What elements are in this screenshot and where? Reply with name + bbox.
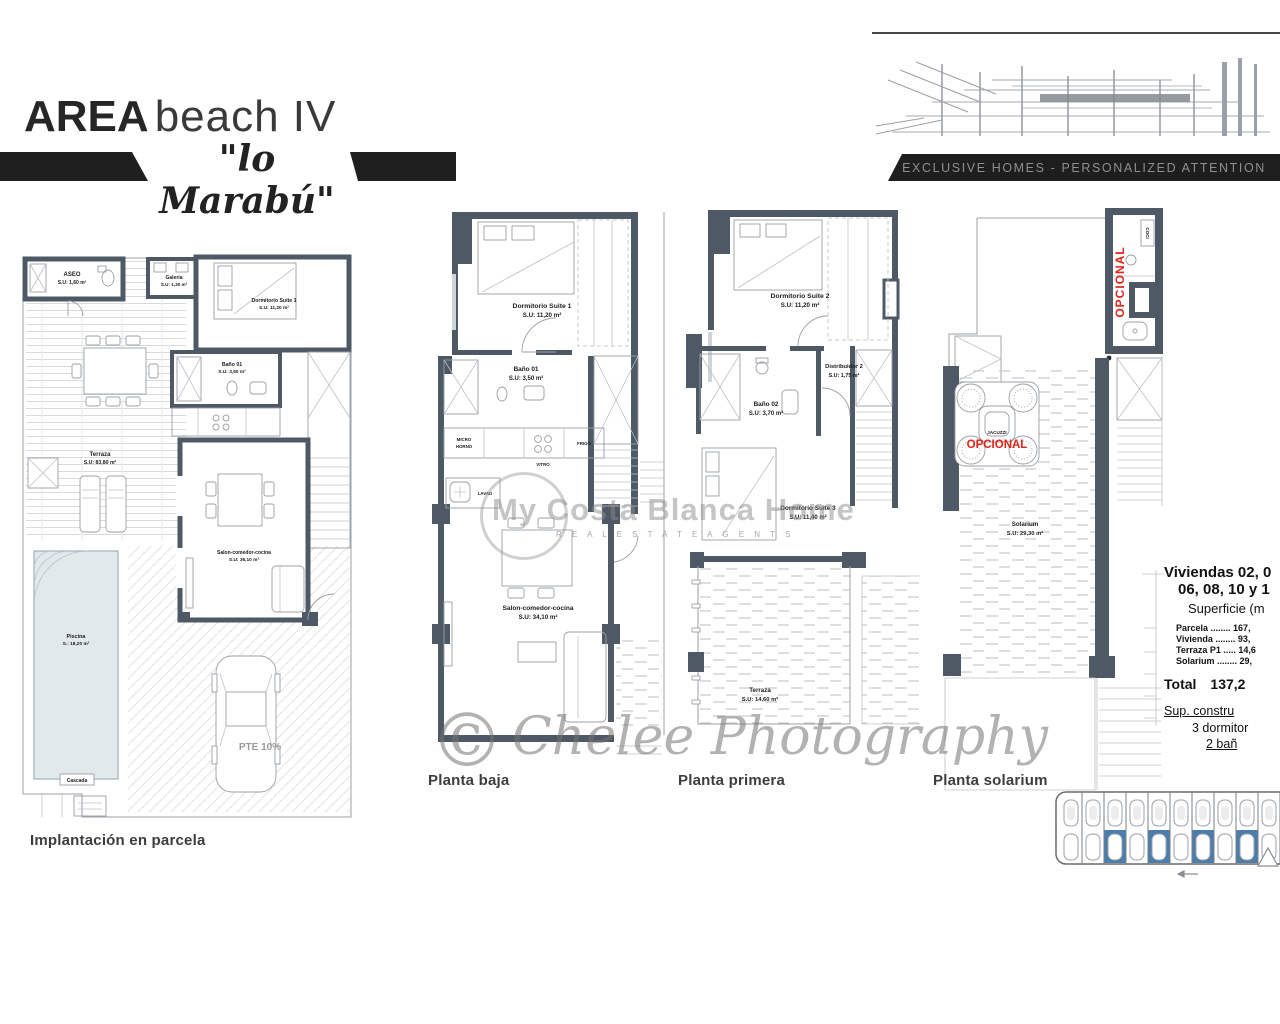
room-label: Baño 02: [754, 401, 779, 408]
surface-row-vivienda: Vivienda ........ 93,: [1176, 634, 1280, 645]
room-label: Baño 01: [222, 362, 242, 368]
optional-vertical-label: OPCIONAL: [1113, 246, 1127, 317]
stairs: [594, 356, 664, 506]
appliance-label-micro: MICRO: [457, 437, 472, 442]
door-arc: [822, 388, 850, 416]
flyer-page: AREAbeach IV "lo Marabú" EXCLUSIVE HOMES…: [0, 0, 1280, 1024]
info-title-line1: Viviendas 02, 0: [1164, 564, 1280, 581]
kitchen-label: COCI: [1145, 227, 1150, 238]
laundry: LAVAD: [446, 478, 500, 508]
stairs: [856, 350, 892, 500]
room-area: S.U: 1,60 m²: [58, 280, 87, 286]
scale-mark: [1178, 871, 1198, 877]
room-label: Dormitorio Suite 1: [252, 298, 297, 304]
kitchenette: COCI OPCIONAL: [1105, 208, 1163, 354]
terrace: Terraza S.U: 14,60 m²: [688, 566, 850, 724]
caption-planta-primera: Planta primera: [678, 772, 785, 789]
walls: [432, 212, 638, 742]
surface-row-terraza: Terraza P1 ..... 14,6: [1176, 645, 1280, 656]
neighbor-outline: [862, 576, 920, 724]
room-area: S.U: 36,10 m²: [229, 557, 260, 563]
house-kitchen: [172, 408, 280, 436]
room-area: S.U: 11,40 m²: [789, 514, 826, 521]
room-area: S.U: 29,30 m²: [1007, 530, 1043, 537]
jacuzzi-optional-label: OPCIONAL: [967, 439, 1028, 451]
house-stairs: [308, 352, 350, 548]
room-label: Dormitorio Suite 1: [513, 303, 572, 310]
room-area: S.U: 34,10 m²: [519, 614, 558, 621]
first-floor-plan: Dormitorio Suite 2 S.U: 11,20 m² Baño 02…: [686, 208, 921, 768]
surface-row-solarium: Solarium ........ 29,: [1176, 656, 1280, 667]
room-label: Solarium: [1012, 521, 1039, 528]
kitchen: MICRO HORNO VITRO FRIGO: [444, 428, 604, 467]
brand-beach-text: beach IV: [155, 92, 337, 141]
brand-bar-left: [0, 152, 148, 181]
window-niche: [884, 280, 898, 318]
pool: Piscina S.: 18,20 m² Cascada: [34, 551, 118, 816]
info-title-line2: 06, 08, 10 y 1: [1178, 581, 1280, 598]
house-bath01: Baño 01 S.U: 3,50 m²: [172, 352, 280, 406]
room-label: Terraza: [90, 452, 112, 458]
hall-area: S.U: 1,75 m²: [829, 373, 860, 379]
header-rule-line: [872, 32, 1280, 34]
bathroom02: Baño 02 S.U: 3,70 m²: [700, 354, 798, 420]
brand-area-text: AREA: [24, 92, 149, 141]
room-area: S.U: 11,20 m²: [781, 302, 820, 309]
built-surface-label: Sup. constru: [1164, 704, 1280, 718]
room-label: Salon-comedor-cocina: [502, 605, 573, 612]
bedroom-suite3: Dormitorio Suite 3 S.U: 11,40 m²: [702, 448, 836, 540]
appliance-label-horno: HORNO: [456, 444, 473, 449]
brand-bar-right: [350, 152, 456, 181]
room-label: Terraza: [749, 687, 771, 694]
dimension-marks: [1142, 566, 1164, 776]
site-plan: ASEO S.U: 1,60 m² Galería S.U: 1,30 m² T…: [20, 248, 355, 833]
info-subtitle: Superficie (m: [1188, 601, 1280, 616]
caption-site-plan: Implantación en parcela: [30, 832, 206, 849]
tagline-text: EXCLUSIVE HOMES - PERSONALIZED ATTENTION: [902, 161, 1266, 175]
cascada-label: Cascada: [67, 778, 88, 784]
room-galeria: Galería S.U: 1,30 m²: [148, 259, 200, 297]
caption-planta-solarium: Planta solarium: [933, 772, 1048, 789]
jacuzzi: JACUZZI OPCIONAL: [955, 382, 1039, 466]
bedroom-suite1: Dormitorio Suite 1 S.U: 11,20 m²: [478, 220, 628, 352]
room-area: S.: 18,20 m²: [63, 641, 90, 647]
stairs: [1117, 358, 1162, 500]
room-label: ASEO: [63, 272, 80, 278]
room-area: S.U: 14,60 m²: [742, 696, 778, 703]
tagline-bar: EXCLUSIVE HOMES - PERSONALIZED ATTENTION: [888, 154, 1280, 181]
bathrooms-count: 2 bañ: [1206, 737, 1280, 751]
house-salon: Salon-comedor-cocina S.U: 36,10 m²: [176, 440, 334, 626]
room-area: S.U: 83,80 m²: [84, 460, 117, 466]
appliance-label-vitro: VITRO: [536, 462, 550, 467]
brand-logo: AREAbeach IV: [24, 92, 336, 142]
jacuzzi-label: JACUZZI: [987, 430, 1006, 435]
room-area: S.U: 1,30 m²: [161, 282, 188, 287]
key-plan: [1046, 786, 1280, 882]
room-label: Salon-comedor-cocina: [217, 550, 271, 556]
bedroom-suite2: Dormitorio Suite 2 S.U: 11,20 m²: [734, 218, 888, 346]
room-area: S.U: 3,50 m²: [509, 375, 543, 382]
surface-table: Parcela ........ 167, Vivienda ........ …: [1176, 623, 1280, 667]
room-label: Baño 01: [514, 366, 539, 373]
car: [212, 656, 280, 792]
roof-outline: [949, 218, 1107, 392]
bathroom01: Baño 01 S.U: 3,50 m²: [444, 360, 544, 414]
room-label: Dormitorio Suite 3: [780, 505, 836, 512]
caption-planta-baja: Planta baja: [428, 772, 509, 789]
info-panel: Viviendas 02, 0 06, 08, 10 y 1 Superfici…: [1164, 564, 1280, 751]
appliance-label-lavad: LAVAD: [478, 491, 492, 496]
room-area: S.U: 11,20 m²: [259, 305, 289, 311]
appliance-label-frigo: FRIGO: [577, 441, 591, 446]
bedrooms-count: 3 dormitor: [1192, 721, 1280, 735]
slope-note: PTE 10%: [239, 742, 281, 753]
surface-total: Total137,2: [1164, 676, 1280, 692]
room-area: S.U: 3,70 m²: [749, 410, 783, 417]
porch-steps: [616, 640, 662, 730]
surface-row-parcela: Parcela ........ 167,: [1176, 623, 1280, 634]
house-bedroom-suite1: Dormitorio Suite 1 S.U: 11,20 m²: [196, 257, 349, 350]
building-wireframe-sketch: [872, 36, 1280, 152]
room-label: Dormitorio Suite 2: [771, 293, 830, 300]
brand-script-name: "lo Marabú": [140, 138, 354, 222]
solarium-plan: COCI OPCIONAL Solarium S.U: 29,30 m²: [933, 206, 1163, 796]
hall-label: Distribuidor 2: [825, 364, 863, 370]
planter: [28, 458, 58, 488]
room-label: Galería: [166, 275, 183, 281]
ground-floor-plan: Dormitorio Suite 1 S.U: 11,20 m² Baño 01…: [426, 210, 666, 765]
room-area: S.U: 3,50 m²: [218, 369, 246, 375]
room-label: Piscina: [67, 634, 87, 640]
